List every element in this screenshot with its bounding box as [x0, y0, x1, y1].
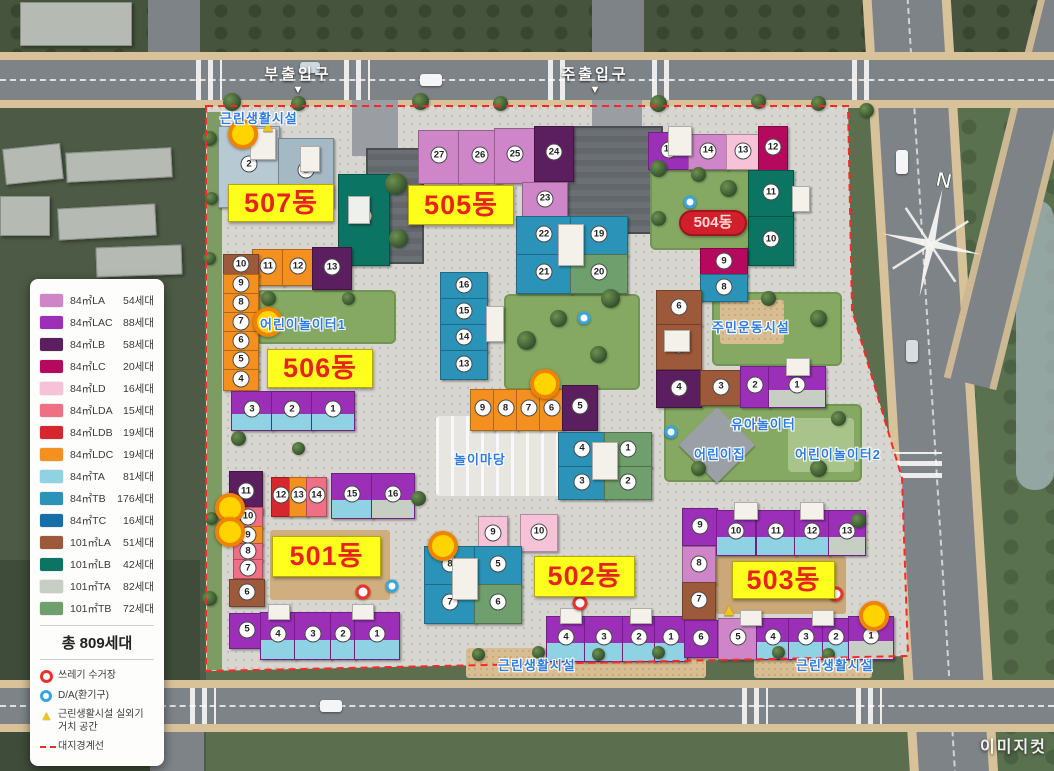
label-507: 507동 [228, 184, 334, 222]
label-501: 501동 [272, 536, 381, 577]
legend-color-swatch [40, 602, 63, 615]
legend-unit-label: 84㎡LDC [70, 447, 123, 462]
legend-unit-label: 84㎡LA [70, 293, 123, 308]
legend-unit-label: 84㎡LAC [70, 315, 123, 330]
legend-unit-count: 20세대 [123, 359, 154, 374]
facility-label-residents-sports: 주민운동시설 [712, 317, 790, 336]
legend-unit-label: 84㎡LB [70, 337, 123, 352]
legend-unit-type-row: 84㎡LB58세대 [30, 333, 164, 355]
legend-color-swatch [40, 382, 63, 395]
legend-symbol-row: ▲근린생활시설 실외기 거치 공간 [30, 705, 164, 737]
facility-label-daycare: 어린이집 [694, 444, 746, 463]
facility-label-toddler-playground: 유아놀이터 [731, 414, 796, 433]
facility-label-neighborhood-bottom-right: 근린생활시설 [796, 655, 874, 674]
legend-unit-type-row: 84㎡LDA15세대 [30, 399, 164, 421]
facility-label-play-yard: 놀이마당 [454, 449, 506, 468]
legend-divider [40, 625, 154, 626]
legend-unit-count: 19세대 [123, 447, 154, 462]
legend-symbol-row: 대지경계선 [30, 737, 164, 756]
legend-symbol-label: 근린생활시설 실외기 거치 공간 [58, 708, 154, 734]
legend-unit-type-row: 84㎡TC16세대 [30, 509, 164, 531]
legend-unit-count: 58세대 [123, 337, 154, 352]
legend-unit-label: 101㎡TA [70, 579, 123, 594]
legend-unit-type-list: 84㎡LA54세대84㎡LAC88세대84㎡LB58세대84㎡LC20세대84㎡… [30, 289, 164, 619]
legend-unit-count: 176세대 [117, 491, 154, 506]
legend-unit-count: 42세대 [123, 557, 154, 572]
legend-unit-type-row: 84㎡TA81세대 [30, 465, 164, 487]
legend-color-swatch [40, 404, 63, 417]
site-plan-map: 2116111213109876543212726252423221921201… [0, 0, 1054, 771]
legend-color-swatch [40, 492, 63, 505]
legend-unit-type-row: 101㎡LA51세대 [30, 531, 164, 553]
legend-unit-label: 84㎡LD [70, 381, 123, 396]
facility-label-neighborhood-bottom-left: 근린생활시설 [498, 655, 576, 674]
legend-unit-type-row: 101㎡LB42세대 [30, 553, 164, 575]
legend-symbol-row: 쓰레기 수거장 [30, 666, 164, 686]
legend-total: 총 809세대 [30, 632, 164, 653]
legend-symbol-label: D/A(환기구) [58, 689, 109, 702]
secondary-entrance-arrow-icon: ▼ [252, 84, 344, 96]
legend-unit-type-row: 84㎡LDB19세대 [30, 421, 164, 443]
legend-unit-label: 101㎡LA [70, 535, 123, 550]
legend-unit-count: 16세대 [123, 513, 154, 528]
legend-color-swatch [40, 558, 63, 571]
legend-unit-label: 84㎡TA [70, 469, 123, 484]
facility-label-playground2: 어린이놀이터2 [795, 444, 881, 463]
legend-unit-label: 101㎡LB [70, 557, 123, 572]
label-502: 502동 [534, 556, 635, 597]
legend-unit-count: 88세대 [123, 315, 154, 330]
legend-unit-label: 84㎡TC [70, 513, 123, 528]
label-503: 503동 [732, 561, 835, 599]
legend-symbol-label: 쓰레기 수거장 [58, 669, 116, 682]
legend-divider [40, 659, 154, 660]
facility-label-neighborhood-top: 근린생활시설 [220, 108, 298, 127]
legend-color-swatch [40, 426, 63, 439]
legend-unit-type-row: 84㎡LA54세대 [30, 289, 164, 311]
legend-unit-count: 15세대 [123, 403, 154, 418]
outdoor-unit-area-marker: ▲ [40, 708, 58, 722]
label-506: 506동 [267, 349, 373, 388]
facility-label-playground1: 어린이놀이터1 [260, 314, 346, 333]
legend-unit-type-row: 84㎡TB176세대 [30, 487, 164, 509]
legend-color-swatch [40, 514, 63, 527]
legend-unit-label: 84㎡LDA [70, 403, 123, 418]
legend-unit-label: 84㎡LDB [70, 425, 123, 440]
label-505: 505동 [408, 185, 514, 225]
legend-color-swatch [40, 448, 63, 461]
legend-unit-type-row: 101㎡TB72세대 [30, 597, 164, 619]
legend-unit-type-row: 84㎡LD16세대 [30, 377, 164, 399]
site-boundary-line [40, 740, 58, 748]
legend-unit-type-row: 84㎡LC20세대 [30, 355, 164, 377]
legend-unit-type-row: 84㎡LAC88세대 [30, 311, 164, 333]
legend-unit-count: 81세대 [123, 469, 154, 484]
trash-collection-marker [40, 669, 58, 683]
legend-unit-type-row: 101㎡TA82세대 [30, 575, 164, 597]
legend-symbol-label: 대지경계선 [58, 740, 104, 753]
legend-panel: 84㎡LA54세대84㎡LAC88세대84㎡LB58세대84㎡LC20세대84㎡… [30, 279, 164, 766]
legend-color-swatch [40, 470, 63, 483]
vent-marker [40, 689, 58, 702]
label-504: 504동 [679, 210, 747, 236]
legend-symbol-row: D/A(환기구) [30, 686, 164, 705]
legend-color-swatch [40, 338, 63, 351]
legend-unit-label: 84㎡LC [70, 359, 123, 374]
legend-color-swatch [40, 316, 63, 329]
watermark: 이미지컷 [980, 733, 1047, 757]
secondary-entrance-label: 부출입구 [252, 63, 344, 84]
legend-symbol-list: 쓰레기 수거장D/A(환기구)▲근린생활시설 실외기 거치 공간대지경계선 [30, 666, 164, 756]
legend-unit-count: 82세대 [123, 579, 154, 594]
legend-unit-count: 54세대 [123, 293, 154, 308]
main-entrance-label: 주출입구 [549, 63, 641, 84]
legend-color-swatch [40, 580, 63, 593]
legend-unit-count: 51세대 [123, 535, 154, 550]
legend-color-swatch [40, 294, 63, 307]
legend-unit-type-row: 84㎡LDC19세대 [30, 443, 164, 465]
legend-color-swatch [40, 536, 63, 549]
legend-unit-count: 16세대 [123, 381, 154, 396]
legend-unit-label: 101㎡TB [70, 601, 123, 616]
main-entrance-arrow-icon: ▼ [549, 84, 641, 96]
legend-unit-label: 84㎡TB [70, 491, 117, 506]
legend-unit-count: 19세대 [123, 425, 154, 440]
legend-color-swatch [40, 360, 63, 373]
legend-unit-count: 72세대 [123, 601, 154, 616]
